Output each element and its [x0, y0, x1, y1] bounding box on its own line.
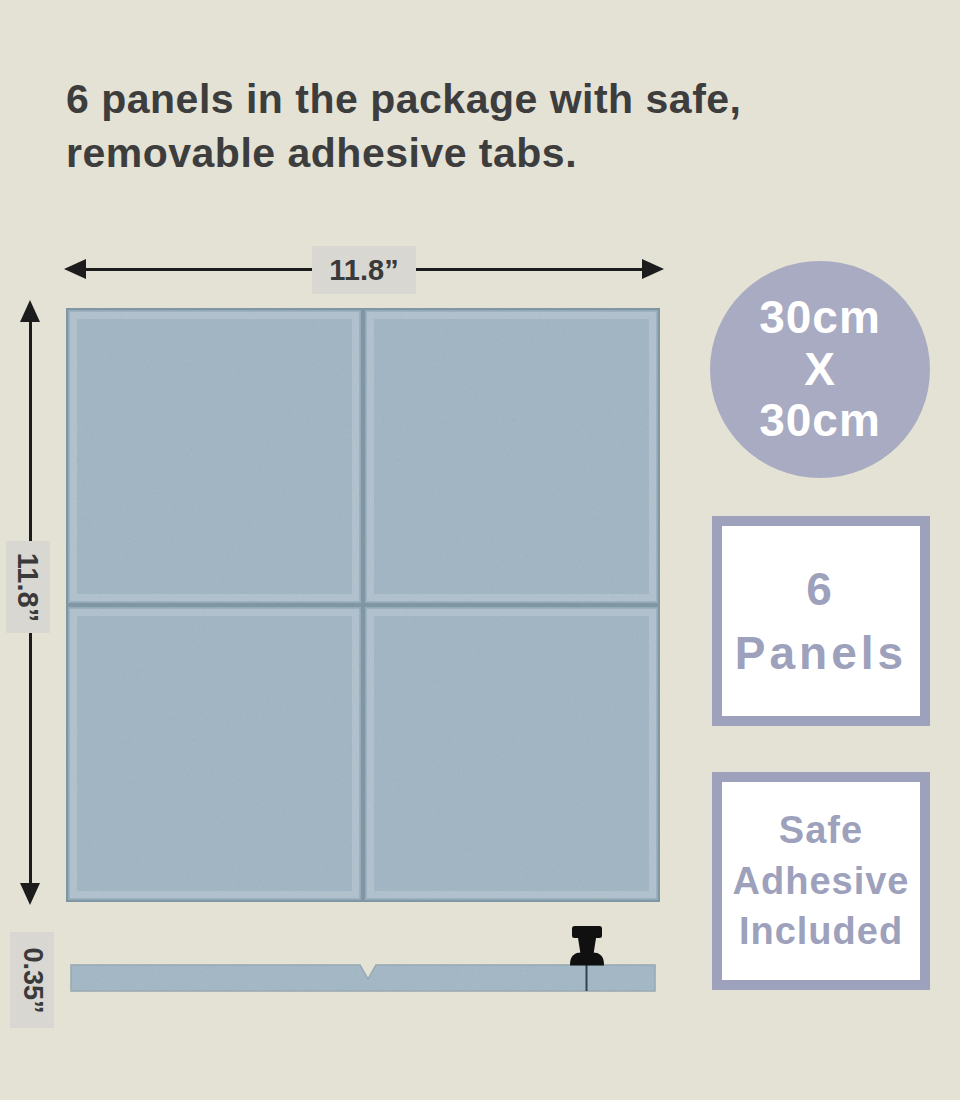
height-dimension-text: 11.8” [12, 552, 45, 621]
panel-front-view [66, 308, 660, 902]
thickness-dimension-label: 0.35” [10, 932, 54, 1028]
page-title: 6 panels in the package with safe, remov… [66, 72, 742, 180]
height-dimension-label: 11.8” [6, 541, 50, 633]
felt-texture-dark [66, 308, 660, 902]
thickness-dimension-text: 0.35” [17, 947, 48, 1013]
arrow-left-icon [64, 259, 86, 279]
width-dimension-label: 11.8” [312, 246, 416, 294]
adhesive-badge: Safe Adhesive Included [712, 772, 930, 990]
size-badge: 30cm X 30cm [710, 261, 930, 478]
width-dimension: 11.8” [64, 251, 664, 289]
panel-side-view [64, 918, 670, 1004]
panel-side-profile-photo [64, 918, 670, 1004]
pushpin-icon [570, 926, 604, 966]
panel-count-badge: 6 Panels [712, 516, 930, 726]
acoustic-panel-photo [66, 308, 660, 902]
arrow-up-icon [20, 300, 40, 322]
arrow-right-icon [642, 259, 664, 279]
arrow-down-icon [20, 883, 40, 905]
